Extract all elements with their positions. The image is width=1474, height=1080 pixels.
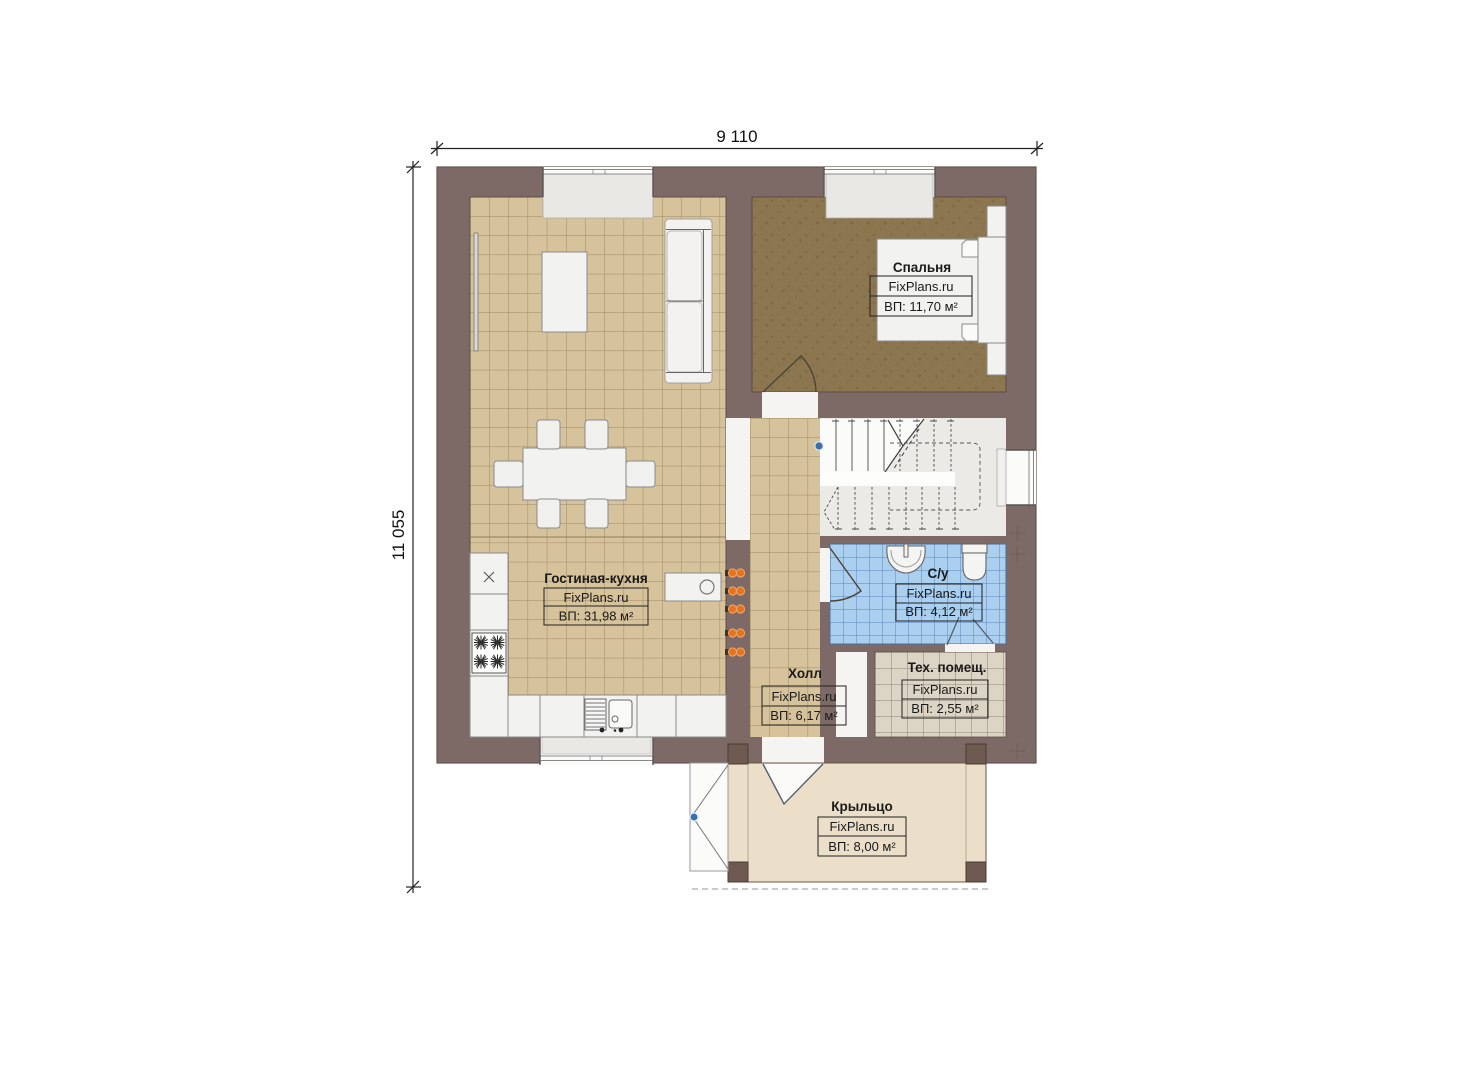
svg-text:Холл: Холл [788, 666, 822, 681]
svg-text:ВП: 4,12 м²: ВП: 4,12 м² [905, 604, 973, 619]
svg-text:ВП: 8,00 м²: ВП: 8,00 м² [828, 839, 896, 854]
svg-text:Крыльцо: Крыльцо [831, 799, 892, 814]
svg-text:С/у: С/у [927, 566, 949, 581]
svg-text:FixPlans.ru: FixPlans.ru [563, 590, 628, 605]
svg-text:Гостиная-кухня: Гостиная-кухня [544, 571, 647, 586]
svg-text:11 055: 11 055 [389, 510, 408, 561]
svg-text:FixPlans.ru: FixPlans.ru [912, 682, 977, 697]
svg-text:FixPlans.ru: FixPlans.ru [829, 819, 894, 834]
svg-text:ВП: 2,55 м²: ВП: 2,55 м² [911, 701, 979, 716]
svg-text:ВП: 31,98 м²: ВП: 31,98 м² [559, 609, 634, 624]
svg-text:9 110: 9 110 [716, 127, 757, 146]
svg-text:FixPlans.ru: FixPlans.ru [888, 279, 953, 294]
svg-text:FixPlans.ru: FixPlans.ru [771, 689, 836, 704]
svg-text:Спальня: Спальня [893, 260, 951, 275]
svg-text:FixPlans.ru: FixPlans.ru [906, 586, 971, 601]
svg-text:ВП: 11,70 м²: ВП: 11,70 м² [884, 299, 958, 314]
svg-text:Тех. помещ.: Тех. помещ. [908, 660, 987, 675]
svg-text:ВП: 6,17 м²: ВП: 6,17 м² [770, 708, 838, 723]
